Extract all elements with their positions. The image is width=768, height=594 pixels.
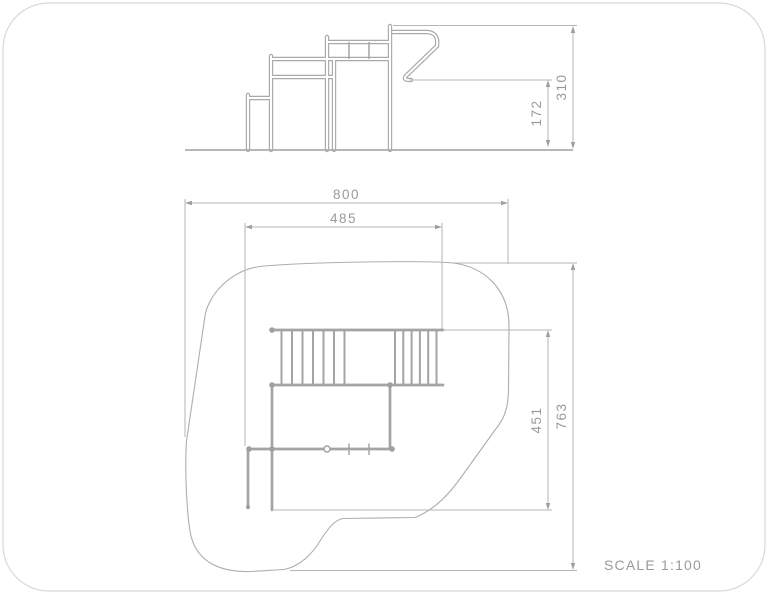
bridge-rungs-right (395, 330, 437, 385)
dim-label-485: 485 (330, 211, 357, 226)
structure-joints (246, 327, 395, 509)
dim-label-451: 451 (529, 406, 544, 433)
post-marker-circle (324, 446, 330, 452)
side-elevation-view: 310 172 (185, 26, 577, 151)
technical-drawing: 310 172 800 485 (0, 0, 768, 594)
guardrail-balusters (349, 42, 369, 59)
dim-label-800: 800 (333, 187, 360, 202)
dimension-total-height: 310 (554, 26, 575, 149)
scale-label: SCALE 1:100 (604, 557, 702, 573)
drawing-sheet: 310 172 800 485 (0, 0, 768, 594)
bridge-rungs-left (282, 330, 345, 385)
dimension-structure-depth: 451 (529, 330, 550, 510)
elevation-structure (248, 26, 437, 150)
dim-label-310: 310 (554, 73, 569, 100)
safety-zone-outline (186, 262, 509, 572)
dim-label-763: 763 (554, 402, 569, 429)
plan-view: 800 485 (185, 187, 577, 572)
sheet-border (3, 3, 765, 591)
dimension-structure-width: 485 (245, 211, 442, 446)
dim-label-172: 172 (529, 99, 544, 126)
dimension-zone-depth: 763 (554, 263, 575, 570)
plan-structure (246, 327, 443, 510)
dimension-platform-height: 172 (529, 80, 550, 147)
